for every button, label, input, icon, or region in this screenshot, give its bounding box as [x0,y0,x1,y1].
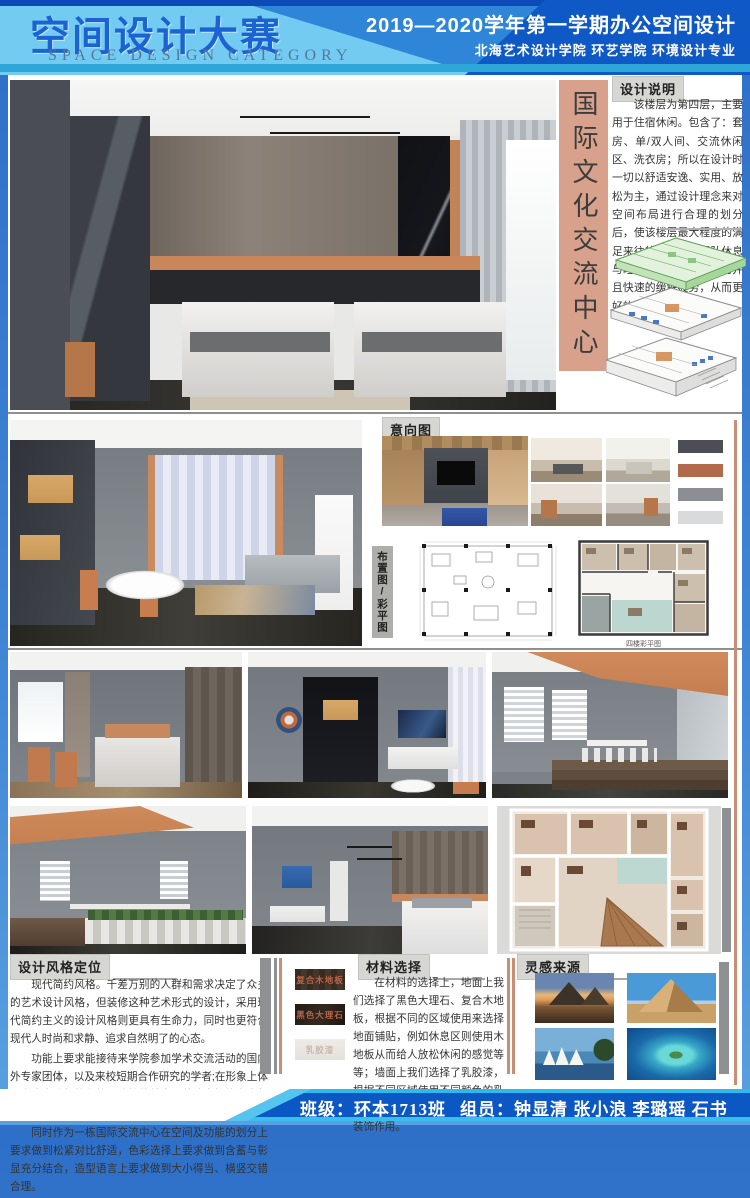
style-paragraph-1: 现代简约风格。千差万别的人群和需求决定了众多的艺术设计风格，但装修这种艺术形式的… [10,976,268,1048]
orange-ceiling-accent [492,652,728,702]
color-swatch-mid-gray [678,488,723,501]
poster: 空间设计大赛 SPACE DESIGN CATEGORY 2019—2020学年… [0,0,750,1125]
material-swatch-wood: 复合木地板 [295,969,345,990]
inspiration-photo-island [627,1028,716,1080]
mood-photo-4 [606,484,670,526]
layout-plan-drawing [418,540,558,642]
mood-photo-3 [531,484,602,526]
gray-accent-line [274,958,277,1074]
color-swatch-dark-gray [678,440,723,453]
material-swatch-marble: 黑色大理石 [295,1004,345,1025]
notes-footer-line [660,228,742,230]
inspiration-photo-pyramids-sunset [535,973,614,1023]
section-divider-2 [8,648,742,650]
page-subtitle: SPACE DESIGN CATEGORY [48,47,352,65]
mood-photo-2 [606,438,670,482]
school-line: 北海艺术设计学院 环艺学院 环境设计专业 [475,40,736,59]
render-suite-bedroom-photo [252,806,488,954]
gray-accent-bar-1 [722,808,731,952]
salmon-accent-line-2 [507,958,510,1074]
class-label: 班级：环本1713班 [300,1095,446,1120]
section-divider-1 [8,412,742,414]
course-title: 2019—2020学年第一学期办公空间设计 [366,9,736,38]
render-dining-hall-photo [10,806,246,954]
project-name-text: 国际文化交流中心 [565,90,602,362]
right-accent-line [734,420,737,1085]
pyramid-shape-3 [639,979,703,1012]
orange-ceiling-accent-2 [10,806,246,868]
opera-shells-shape [543,1043,595,1065]
gray-accent-bar-2 [260,958,271,1074]
mood-photo-1 [531,438,602,482]
color-floor-plan [578,540,709,636]
gray-accent-bar-3 [719,962,729,1074]
color-swatch-light-gray [678,511,723,524]
members-label: 组员：钟显清 张小浪 李璐瑶 石书 [460,1095,728,1120]
render-guest-bedroom-photo [10,652,242,798]
header: 空间设计大赛 SPACE DESIGN CATEGORY 2019—2020学年… [0,0,750,75]
inspiration-photo-opera-house [535,1028,614,1080]
salmon-accent-line-1 [279,958,282,1074]
render-twin-bedroom-photo [10,80,556,410]
render-dining-platform-photo [492,652,728,798]
inspiration-photo-great-pyramid [627,973,716,1023]
header-teal-strip [0,64,750,72]
salmon-accent-line-3 [512,958,515,1074]
plans-label: 布置图/彩平图 [375,551,390,633]
render-living-room-photo [10,420,362,646]
style-paragraph-3: 同时作为一栋国际交流中心在空间及功能的划分上要求做到松紧对比舒适，色彩选择上要求… [10,1124,268,1196]
3d-top-view-plan [497,806,721,954]
plans-label-bar: 布置图/彩平图 [372,546,393,638]
pyramid-shape [549,982,589,1005]
project-name-banner: 国际文化交流中心 [559,80,608,371]
footer-bar: 班级：环本1713班 组员：钟显清 张小浪 李璐瑶 石书 [0,1089,750,1121]
render-tv-lounge-photo [248,652,486,798]
material-swatch-paint: 乳胶漆 [295,1039,345,1060]
style-section-body: 现代简约风格。千差万别的人群和需求决定了众多的艺术设计风格，但装修这种艺术形式的… [10,976,268,1198]
color-swatch-terracotta [678,464,723,477]
mood-photo-loft [382,436,528,526]
pyramid-shape-2 [581,987,609,1005]
exploded-axonometric-diagram [606,236,746,408]
